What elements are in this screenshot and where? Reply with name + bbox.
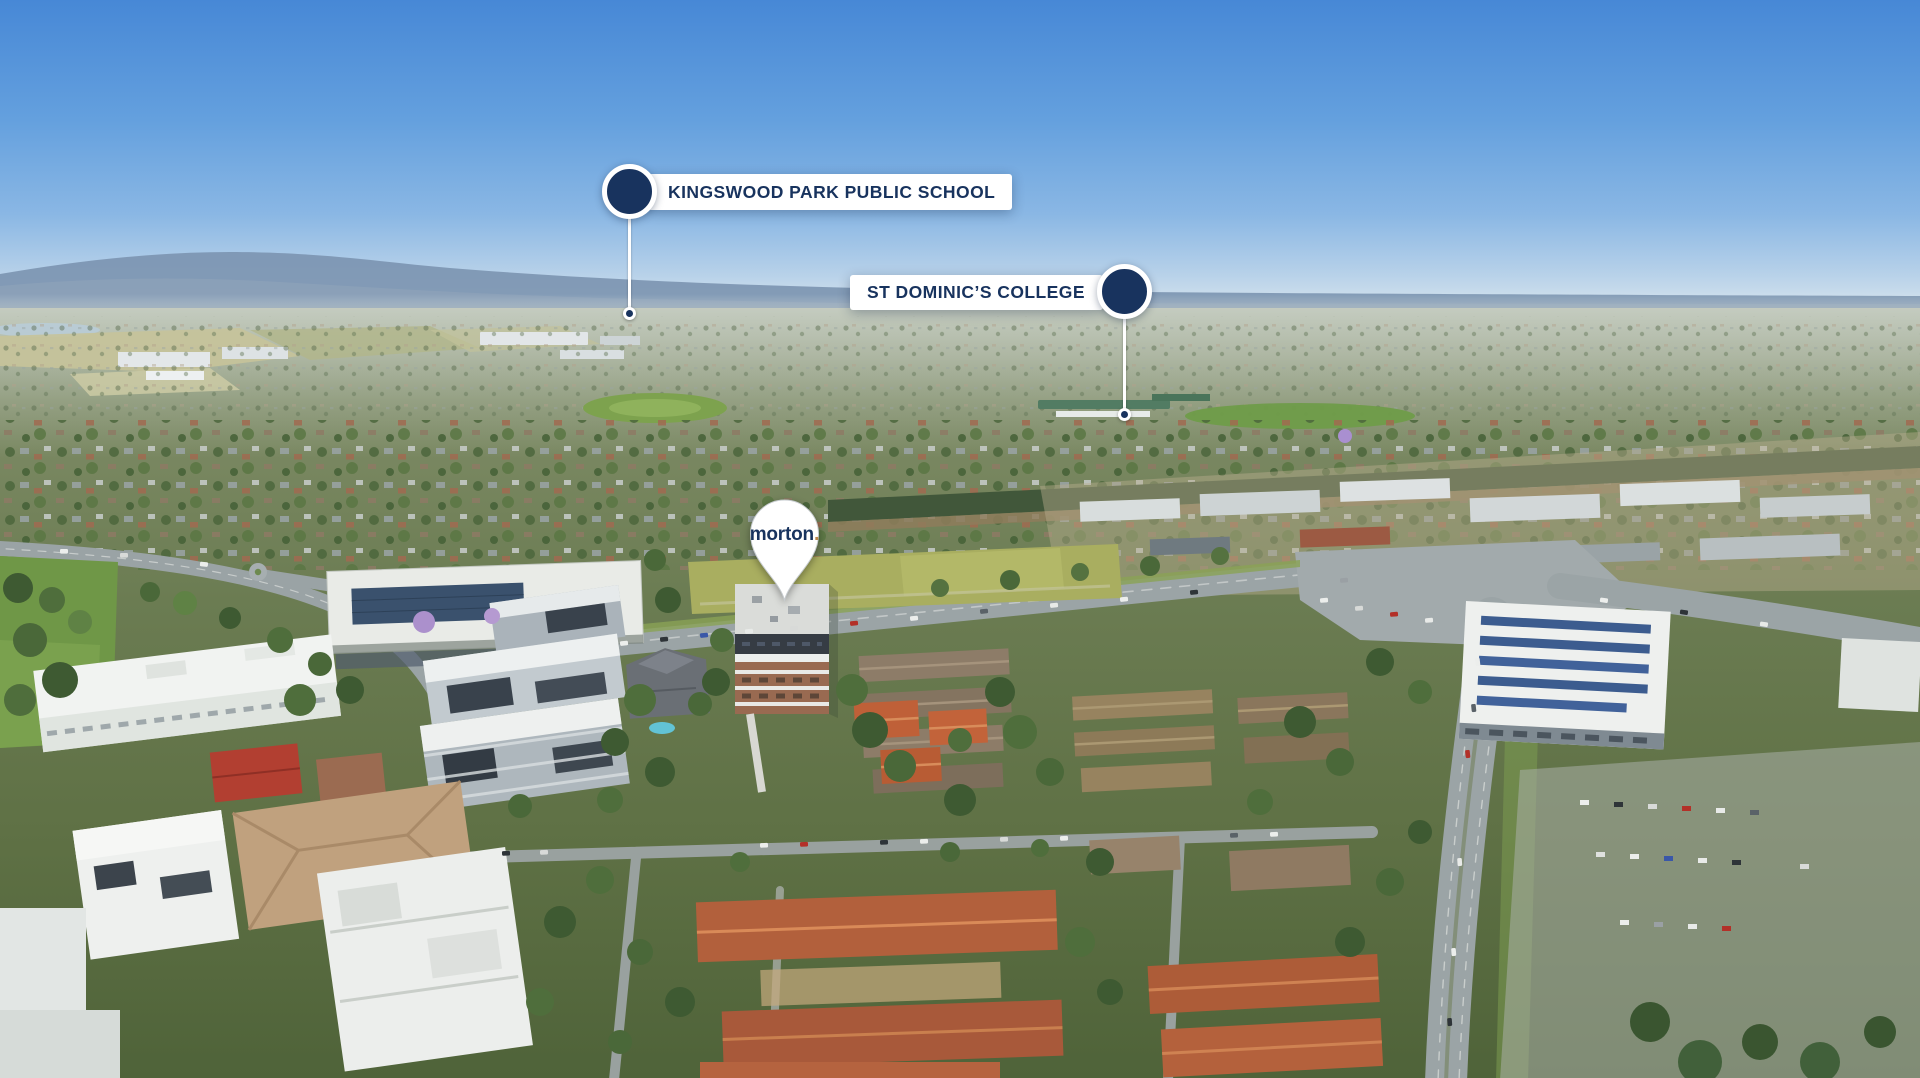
leader-dot-kingswood xyxy=(623,307,636,320)
brand-text: morton xyxy=(750,524,814,545)
marker-label-text: KINGSWOOD PARK PUBLIC SCHOOL xyxy=(668,182,995,203)
marker-label-st-dominics-college: ST DOMINIC’S COLLEGE xyxy=(850,275,1103,310)
marker-circle-kingswood xyxy=(602,164,657,219)
marker-circle-st-dominics xyxy=(1097,264,1152,319)
aerial-marketing-image: KINGSWOOD PARK PUBLIC SCHOOL ST DOMINIC’… xyxy=(0,0,1920,1078)
leader-line-kingswood xyxy=(628,217,631,309)
morton-map-pin: morton. xyxy=(748,498,821,603)
leader-dot-st-dominics xyxy=(1118,408,1131,421)
marker-label-text: ST DOMINIC’S COLLEGE xyxy=(867,282,1085,303)
leader-line-st-dominics xyxy=(1123,317,1126,410)
brand-dot: . xyxy=(814,523,819,545)
pin-shape xyxy=(748,498,821,603)
morton-brand: morton. xyxy=(748,523,821,546)
marker-label-kingswood-park-public-school: KINGSWOOD PARK PUBLIC SCHOOL xyxy=(648,174,1012,210)
commercial-building xyxy=(1459,601,1671,750)
aerial-photo xyxy=(0,0,1920,1078)
carpark xyxy=(1500,742,1920,1078)
